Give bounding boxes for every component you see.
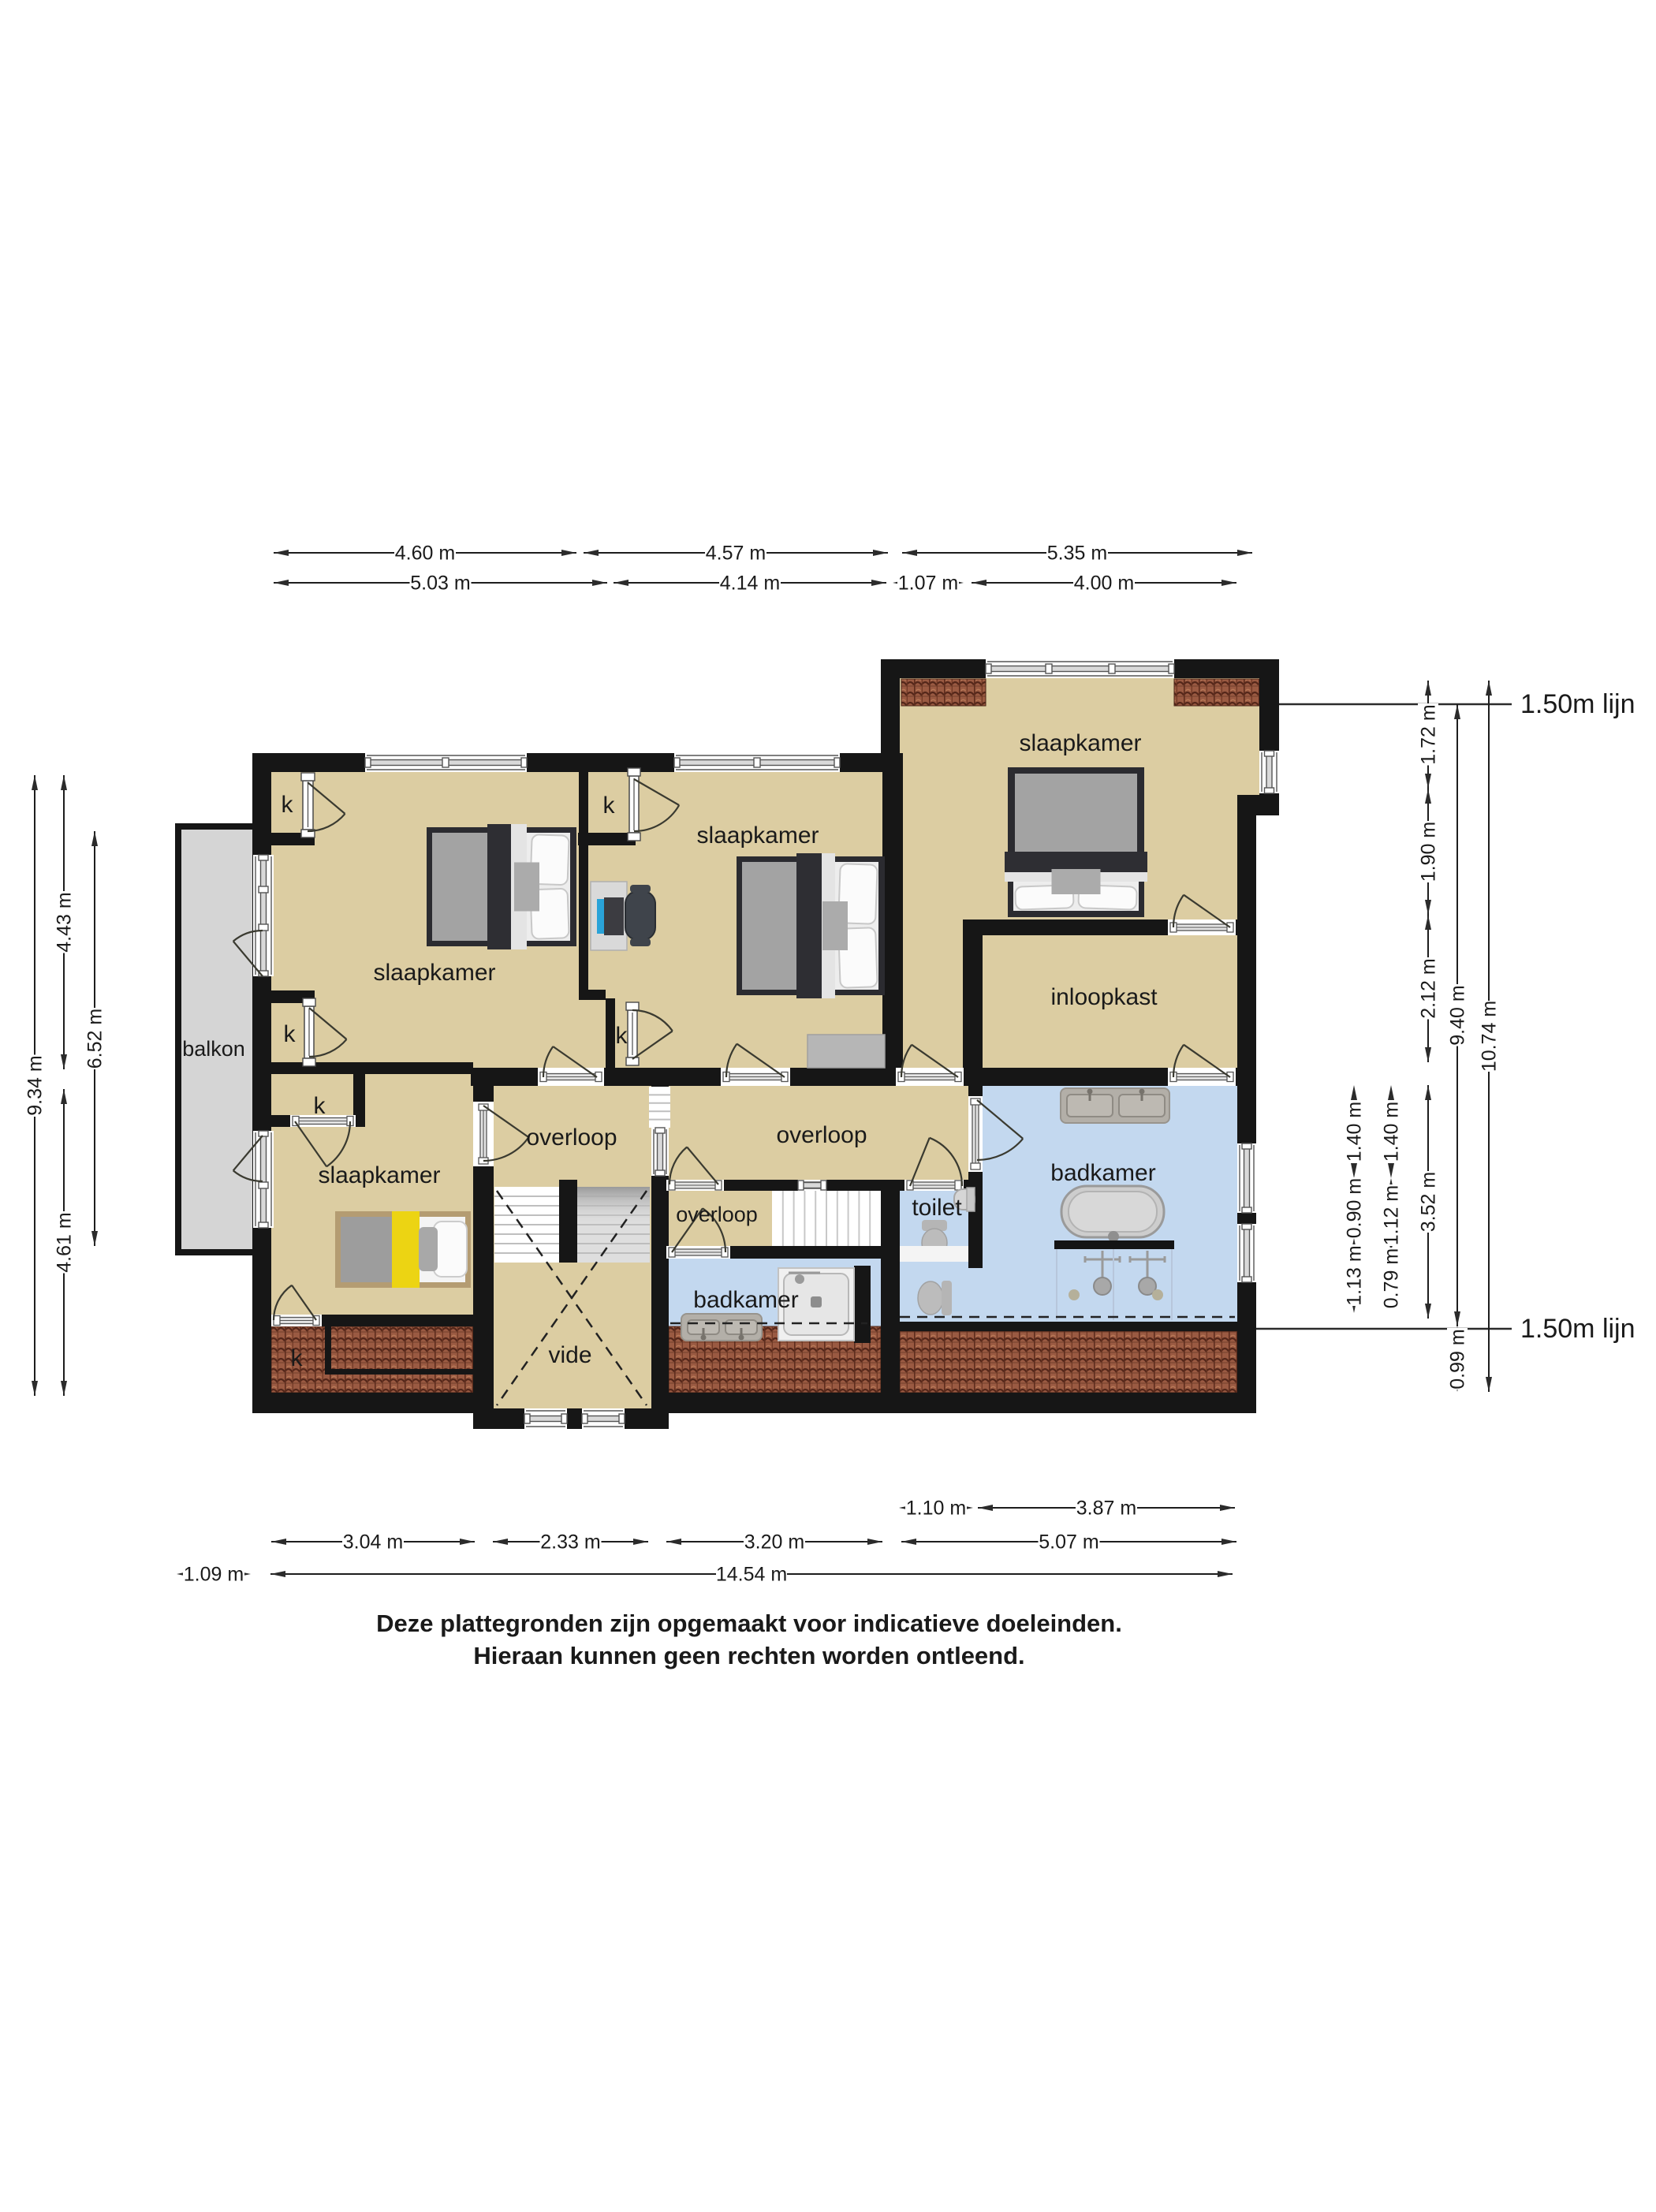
svg-text:5.35 m: 5.35 m <box>1047 543 1107 565</box>
svg-text:1.40 m: 1.40 m <box>1344 1102 1366 1162</box>
svg-text:2.12 m: 2.12 m <box>1418 958 1440 1018</box>
svg-text:4.14 m: 4.14 m <box>720 573 780 595</box>
svg-text:vide: vide <box>548 1342 591 1368</box>
svg-text:k: k <box>284 1021 297 1047</box>
svg-text:badkamer: badkamer <box>693 1287 798 1313</box>
svg-text:1.40 m: 1.40 m <box>1381 1102 1403 1162</box>
svg-text:4.00 m: 4.00 m <box>1074 573 1134 595</box>
svg-text:k: k <box>282 792 294 818</box>
svg-text:6.52 m: 6.52 m <box>84 1009 106 1069</box>
svg-text:3.20 m: 3.20 m <box>744 1531 804 1554</box>
svg-text:badkamer: badkamer <box>1050 1160 1155 1186</box>
svg-text:overloop: overloop <box>676 1203 758 1226</box>
svg-text:14.54 m: 14.54 m <box>716 1564 787 1586</box>
svg-text:0.79 m: 0.79 m <box>1381 1248 1403 1308</box>
svg-text:4.57 m: 4.57 m <box>706 543 766 565</box>
svg-text:5.07 m: 5.07 m <box>1039 1531 1098 1554</box>
svg-text:9.34 m: 9.34 m <box>24 1055 47 1115</box>
svg-text:1.10 m: 1.10 m <box>906 1498 966 1520</box>
svg-text:1.90 m: 1.90 m <box>1418 822 1440 882</box>
svg-text:Deze plattegronden zijn opgema: Deze plattegronden zijn opgemaakt voor i… <box>376 1610 1122 1637</box>
svg-text:0.90 m: 0.90 m <box>1344 1178 1366 1238</box>
svg-text:1.09 m: 1.09 m <box>184 1564 244 1586</box>
svg-text:k: k <box>616 1023 628 1049</box>
svg-text:balkon: balkon <box>182 1037 245 1061</box>
svg-text:1.50m lijn: 1.50m lijn <box>1520 1314 1635 1344</box>
svg-text:1.72 m: 1.72 m <box>1418 704 1440 764</box>
svg-text:2.33 m: 2.33 m <box>540 1531 600 1554</box>
svg-text:1.12 m: 1.12 m <box>1381 1185 1403 1245</box>
svg-text:5.03 m: 5.03 m <box>410 573 470 595</box>
svg-text:overloop: overloop <box>776 1122 867 1148</box>
svg-text:3.04 m: 3.04 m <box>343 1531 403 1554</box>
svg-text:1.13 m: 1.13 m <box>1344 1245 1366 1305</box>
svg-text:k: k <box>314 1093 326 1119</box>
svg-text:9.40 m: 9.40 m <box>1447 985 1469 1045</box>
svg-text:k: k <box>603 793 616 819</box>
svg-text:slaapkamer: slaapkamer <box>318 1162 440 1188</box>
svg-text:0.99 m: 0.99 m <box>1447 1329 1469 1389</box>
svg-text:inloopkast: inloopkast <box>1050 984 1158 1010</box>
svg-text:slaapkamer: slaapkamer <box>1019 730 1141 756</box>
svg-text:4.61 m: 4.61 m <box>54 1212 76 1272</box>
svg-text:10.74 m: 10.74 m <box>1479 1001 1501 1072</box>
svg-text:4.43 m: 4.43 m <box>54 892 76 952</box>
svg-text:4.60 m: 4.60 m <box>395 543 455 565</box>
svg-text:overloop: overloop <box>526 1125 617 1151</box>
svg-text:toilet: toilet <box>912 1195 962 1221</box>
svg-text:1.07 m: 1.07 m <box>898 573 958 595</box>
svg-text:Hieraan kunnen geen rechten wo: Hieraan kunnen geen rechten worden ontle… <box>473 1642 1024 1669</box>
svg-text:3.87 m: 3.87 m <box>1076 1498 1136 1520</box>
svg-text:slaapkamer: slaapkamer <box>373 960 495 986</box>
svg-text:1.50m lijn: 1.50m lijn <box>1520 689 1635 719</box>
svg-text:k: k <box>291 1345 304 1371</box>
svg-text:3.52 m: 3.52 m <box>1418 1172 1440 1232</box>
svg-text:slaapkamer: slaapkamer <box>696 823 819 849</box>
